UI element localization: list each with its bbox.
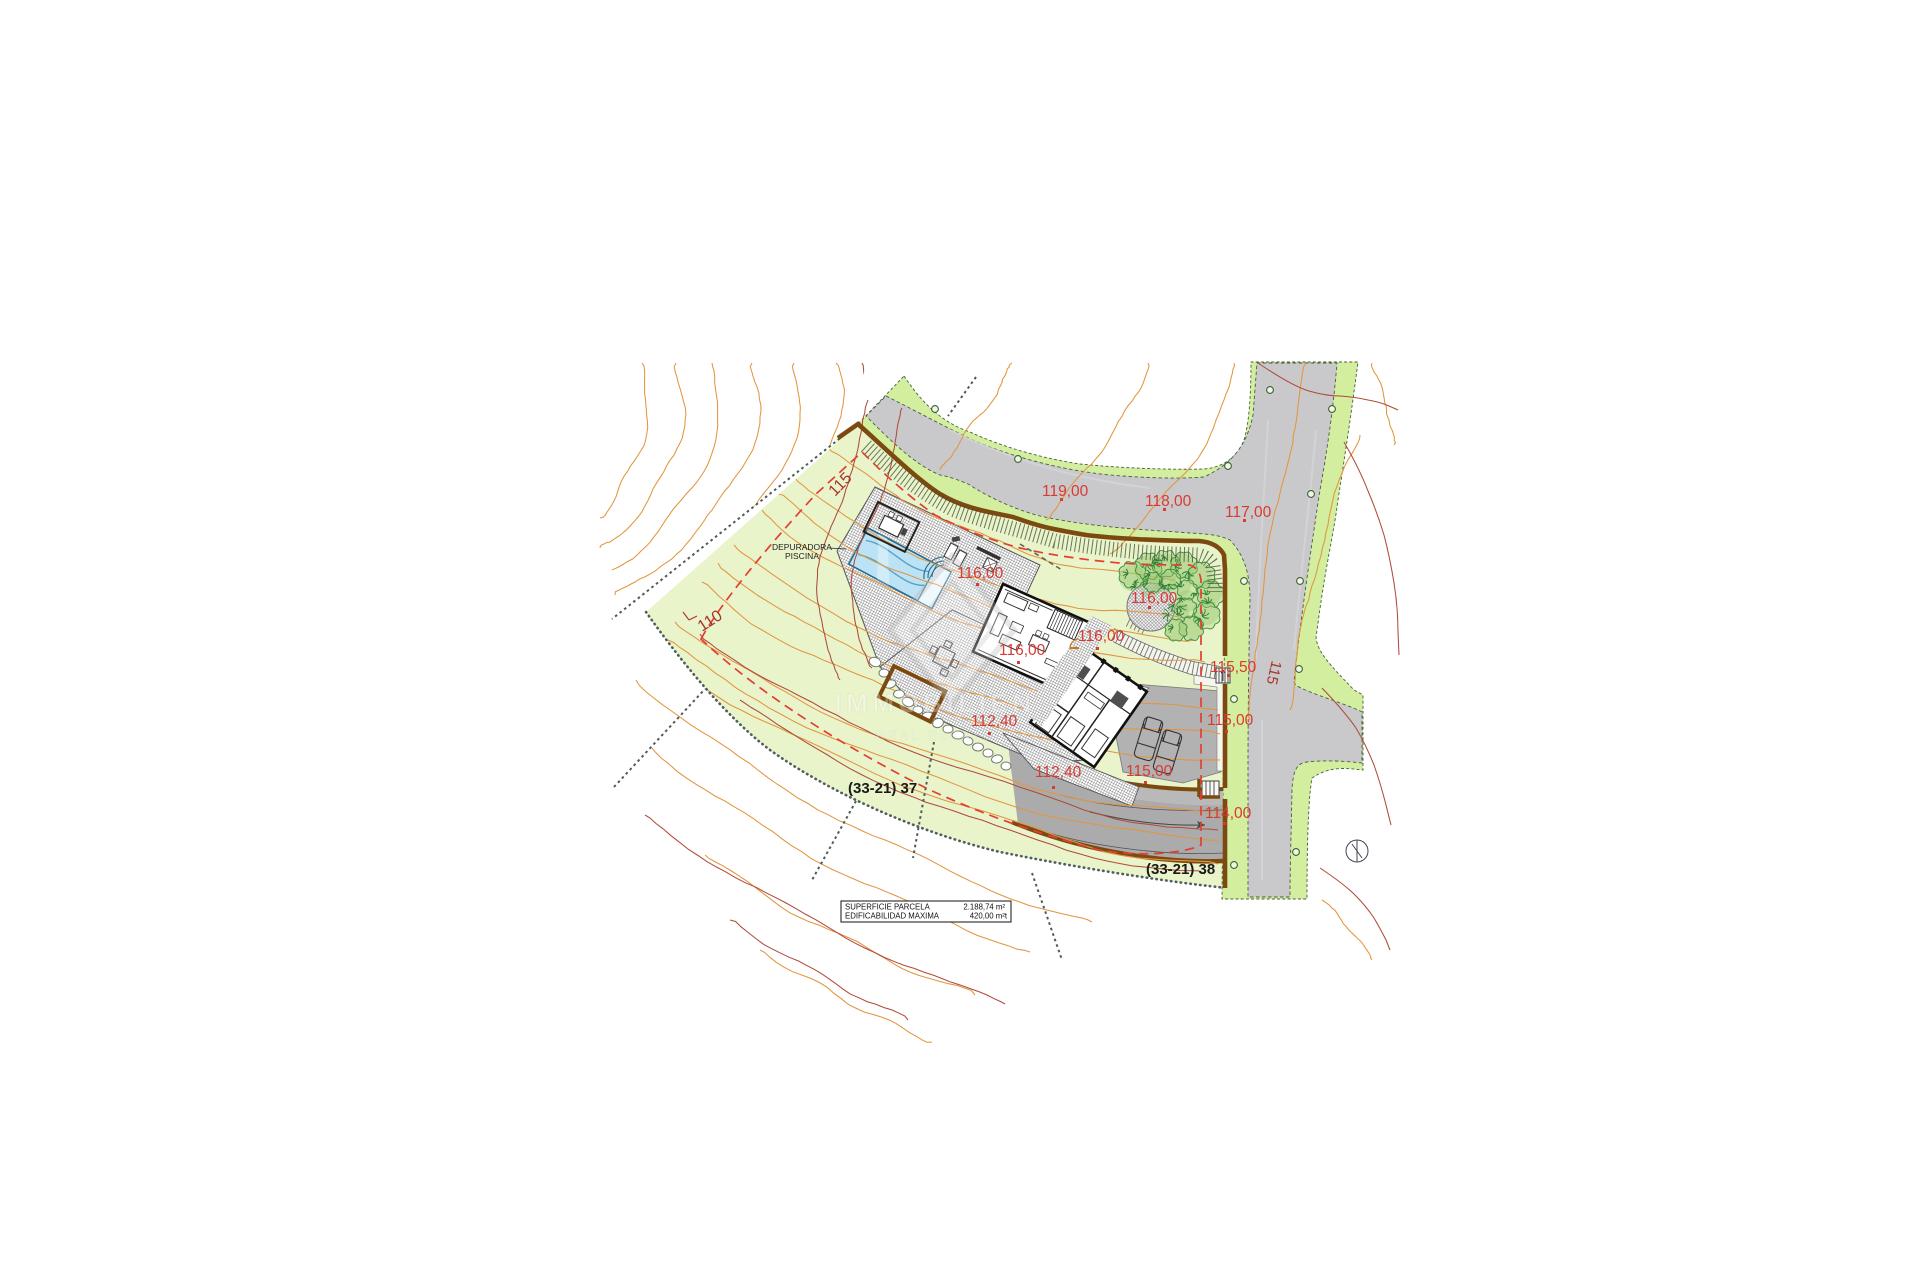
svg-text:420,00 m²t: 420,00 m²t bbox=[970, 912, 1008, 921]
svg-text:118,00: 118,00 bbox=[1145, 493, 1192, 510]
svg-text:(33-21) 38: (33-21) 38 bbox=[1146, 861, 1215, 878]
svg-text:116,00: 116,00 bbox=[999, 642, 1046, 659]
svg-text:116,00: 116,00 bbox=[1131, 590, 1178, 607]
svg-text:115,00: 115,00 bbox=[1207, 712, 1254, 729]
svg-text:115,00: 115,00 bbox=[1126, 763, 1173, 780]
svg-text:117,00: 117,00 bbox=[1225, 504, 1272, 521]
svg-text:REAL ESTATE: REAL ESTATE bbox=[876, 728, 995, 743]
svg-text:115,50: 115,50 bbox=[1210, 659, 1257, 676]
svg-text:PISCINA: PISCINA bbox=[785, 551, 819, 561]
svg-text:SUPERFICIE PARCELA: SUPERFICIE PARCELA bbox=[845, 903, 931, 912]
svg-text:116,00: 116,00 bbox=[1078, 628, 1125, 645]
svg-text:116,00: 116,00 bbox=[957, 565, 1004, 582]
svg-text:(33-21) 37: (33-21) 37 bbox=[848, 780, 917, 797]
svg-text:2.188,74 m²: 2.188,74 m² bbox=[963, 903, 1005, 912]
svg-text:114,00: 114,00 bbox=[1205, 805, 1252, 822]
svg-text:EDIFICABILIDAD MAXIMA: EDIFICABILIDAD MAXIMA bbox=[845, 912, 940, 921]
svg-text:119,00: 119,00 bbox=[1042, 483, 1089, 500]
svg-text:112,40: 112,40 bbox=[1035, 764, 1082, 781]
svg-text:112,40: 112,40 bbox=[971, 713, 1018, 730]
